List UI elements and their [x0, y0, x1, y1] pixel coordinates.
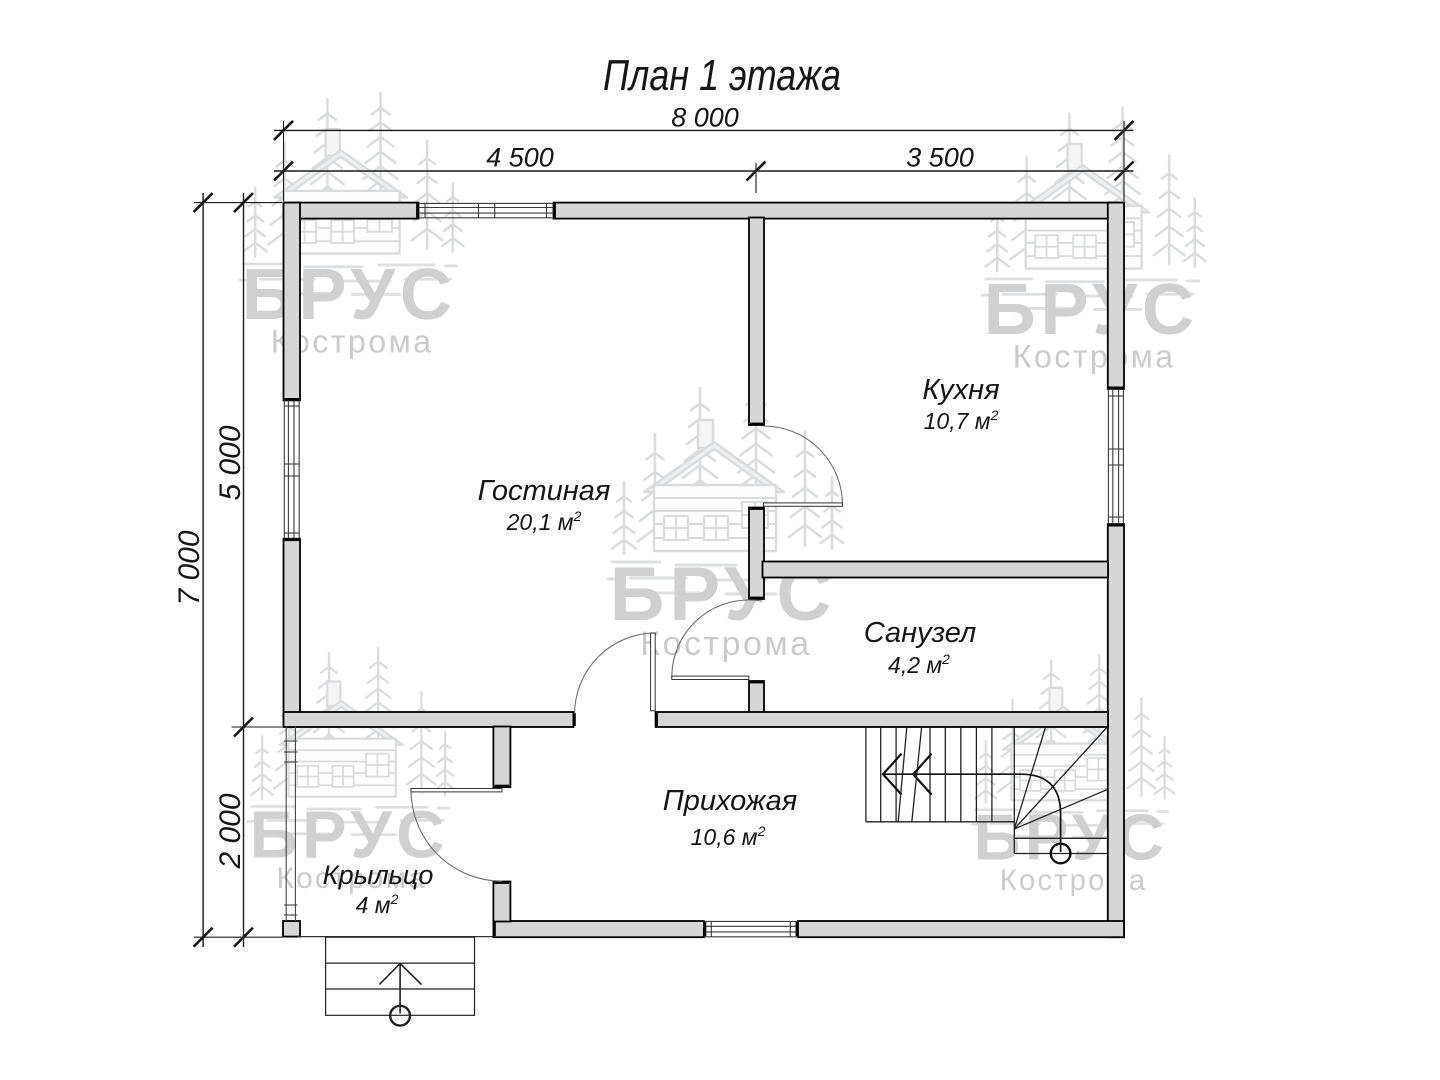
svg-text:20,1 м2: 20,1 м2 [506, 508, 582, 535]
svg-text:4,2 м2: 4,2 м2 [888, 651, 950, 678]
svg-text:БРУС: БРУС [974, 801, 1169, 874]
svg-text:8 000: 8 000 [671, 103, 739, 133]
svg-text:Кострома: Кострома [1000, 865, 1147, 897]
svg-text:10,6 м2: 10,6 м2 [691, 823, 766, 850]
svg-text:4 500: 4 500 [486, 143, 554, 173]
svg-text:7 000: 7 000 [173, 530, 206, 605]
svg-text:Санузел: Санузел [864, 617, 977, 649]
svg-text:Кострома: Кострома [1013, 338, 1176, 374]
svg-text:3 500: 3 500 [906, 143, 974, 173]
svg-text:10,7 м2: 10,7 м2 [924, 407, 999, 434]
svg-text:План 1 этажа: План 1 этажа [603, 51, 841, 100]
svg-text:2 000: 2 000 [214, 793, 247, 869]
svg-text:Крыльцо: Крыльцо [323, 860, 434, 890]
svg-text:Кухня: Кухня [922, 374, 999, 406]
svg-text:5 000: 5 000 [214, 425, 247, 500]
svg-text:Прихожая: Прихожая [663, 785, 798, 817]
svg-text:Кострома: Кострома [640, 625, 811, 663]
svg-text:Гостиная: Гостиная [478, 475, 611, 507]
